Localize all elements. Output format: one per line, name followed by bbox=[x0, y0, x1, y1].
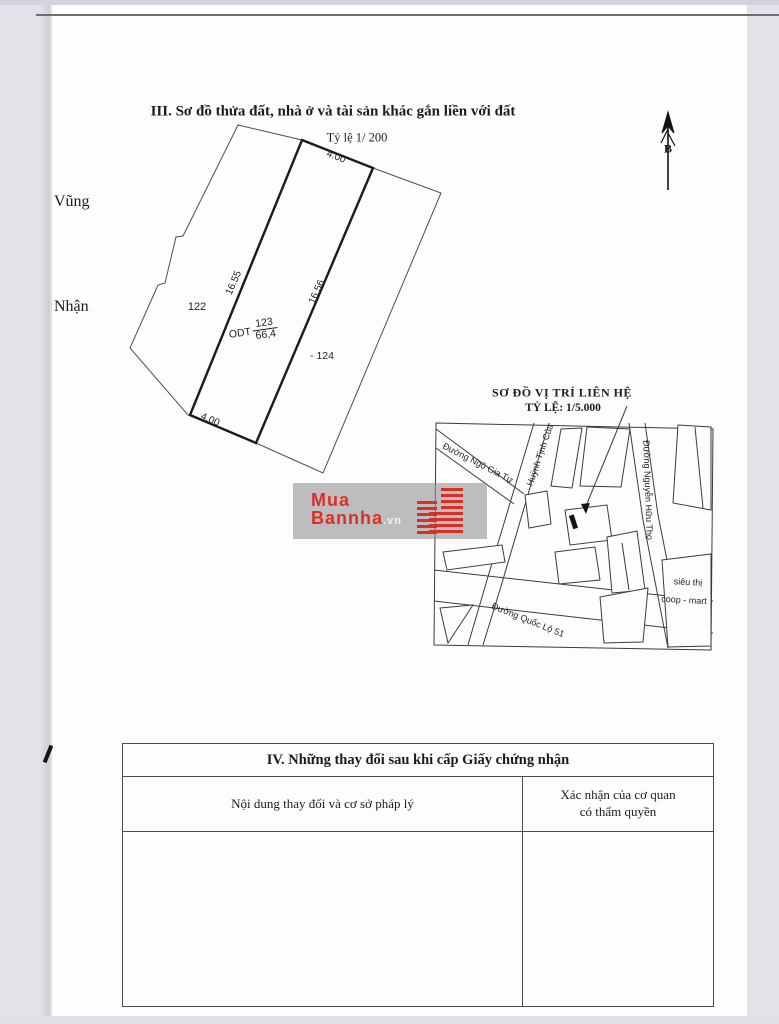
north-label: B bbox=[664, 142, 672, 157]
watermark-line2: Bannha.vn bbox=[311, 509, 402, 527]
land-plot-diagram bbox=[130, 125, 441, 473]
section4-table: IV. Những thay đổi sau khi cấp Giấy chứn… bbox=[122, 743, 714, 1007]
plot-scale-label: Tỷ lệ 1/ 200 bbox=[327, 131, 388, 146]
section4-title: IV. Những thay đổi sau khi cấp Giấy chứn… bbox=[123, 744, 713, 777]
watermark-text: Mua Bannha.vn bbox=[311, 491, 402, 527]
margin-word-top: Vũng bbox=[54, 193, 90, 211]
section4-col-right-header: Xác nhận của cơ quan có thẩm quyền bbox=[523, 777, 713, 831]
parcel-number-right: - 124 bbox=[310, 350, 334, 362]
map-title: SƠ ĐỒ VỊ TRÍ LIÊN HỆ bbox=[492, 386, 632, 401]
section4-col-left-header: Nội dung thay đổi và cơ sở pháp lý bbox=[123, 777, 523, 831]
section3-title: III. Sơ đồ thửa đất, nhà ở và tài sản kh… bbox=[151, 104, 516, 121]
logo-buildings-icon bbox=[417, 488, 471, 536]
parcel-number-area-fraction: 123 66,4 bbox=[251, 316, 278, 342]
watermark-logo: Mua Bannha.vn bbox=[293, 483, 487, 539]
parcel-number-left: 122 bbox=[188, 301, 206, 313]
watermark-line1: Mua bbox=[311, 491, 402, 509]
section4-body-row bbox=[123, 832, 713, 1006]
section4-body-right-cell bbox=[523, 832, 713, 1006]
section4-header-row: Nội dung thay đổi và cơ sở pháp lý Xác n… bbox=[123, 777, 713, 832]
poi-label-sieu-thi: siêu thị bbox=[673, 576, 702, 587]
section4-body-left-cell bbox=[123, 832, 523, 1006]
watermark-tld: .vn bbox=[383, 515, 402, 527]
margin-word-bottom: Nhận bbox=[54, 298, 89, 316]
parcel-land-use-code: ODT bbox=[228, 325, 252, 340]
map-scale-label: TỶ LỆ: 1/5.000 bbox=[525, 402, 601, 414]
